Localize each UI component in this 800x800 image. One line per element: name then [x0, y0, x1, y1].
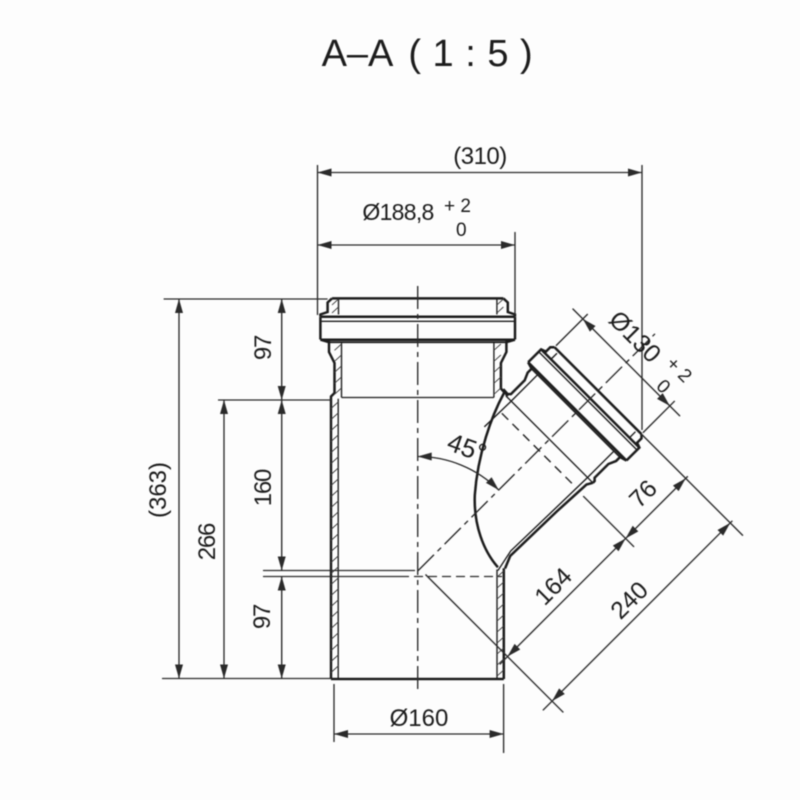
- svg-text:Ø160: Ø160: [390, 705, 449, 732]
- svg-text:( 1 : 5 ): ( 1 : 5 ): [408, 33, 532, 75]
- svg-text:164: 164: [530, 563, 578, 611]
- svg-text:97: 97: [250, 335, 277, 360]
- svg-text:160: 160: [250, 469, 277, 506]
- svg-text:266: 266: [194, 523, 221, 560]
- svg-text:45°: 45°: [443, 427, 490, 469]
- svg-text:Ø130: Ø130: [603, 305, 666, 368]
- svg-text:(310): (310): [453, 143, 507, 170]
- svg-text:97: 97: [249, 604, 276, 629]
- svg-text:+ 2: + 2: [444, 196, 471, 217]
- svg-text:0: 0: [456, 220, 467, 241]
- svg-text:240: 240: [606, 577, 654, 625]
- svg-text:A–A: A–A: [322, 33, 394, 75]
- svg-text:(363): (363): [145, 462, 172, 518]
- svg-text:Ø188,8: Ø188,8: [362, 199, 433, 225]
